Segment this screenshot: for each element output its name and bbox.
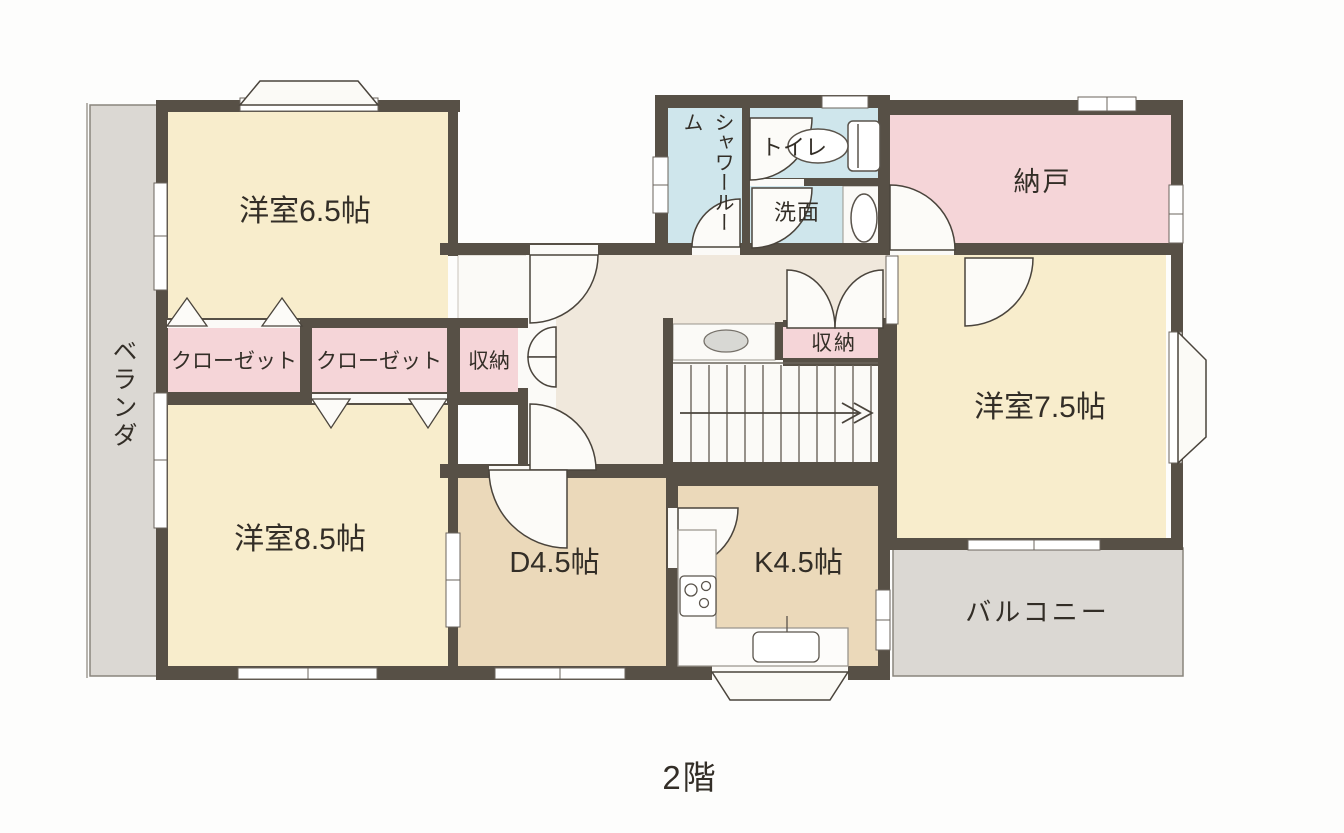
floor-title: 2階	[620, 752, 760, 798]
label-storage-small-hall: 収納	[461, 347, 517, 373]
label-closet-right: クローゼット	[314, 346, 444, 374]
label-veranda: ベランダ	[94, 326, 152, 462]
niche-basin-icon	[704, 330, 748, 352]
label-kitchen: K4.5帖	[706, 538, 891, 582]
label-western-7-5: 洋室7.5帖	[905, 382, 1175, 426]
bay-window-top	[240, 81, 378, 105]
bay-window-kitchen	[712, 672, 848, 700]
label-washroom: 洗面	[752, 196, 842, 226]
label-balcony: バルコニー	[920, 593, 1155, 627]
label-toilet: トイレ	[748, 131, 840, 161]
stairs-floor	[673, 360, 878, 464]
label-storage-small-stairs: 収納	[790, 329, 878, 355]
floor-plan-page: 洋室6.5帖 洋室8.5帖 洋室7.5帖 D4.5帖 K4.5帖 納戸 トイレ …	[0, 0, 1344, 833]
label-western-8-5: 洋室8.5帖	[165, 514, 435, 558]
label-closet-left: クローゼット	[169, 346, 299, 374]
doorway-western-6-5	[458, 255, 528, 321]
label-dining: D4.5帖	[462, 538, 647, 582]
label-western-6-5: 洋室6.5帖	[170, 186, 440, 230]
stove-icon	[680, 576, 716, 616]
washbasin-icon	[851, 194, 877, 242]
label-storage-room: 納戸	[975, 158, 1110, 200]
bay-window-western-7-5	[1178, 332, 1206, 463]
label-shower-room: シャワールーム	[672, 112, 740, 242]
